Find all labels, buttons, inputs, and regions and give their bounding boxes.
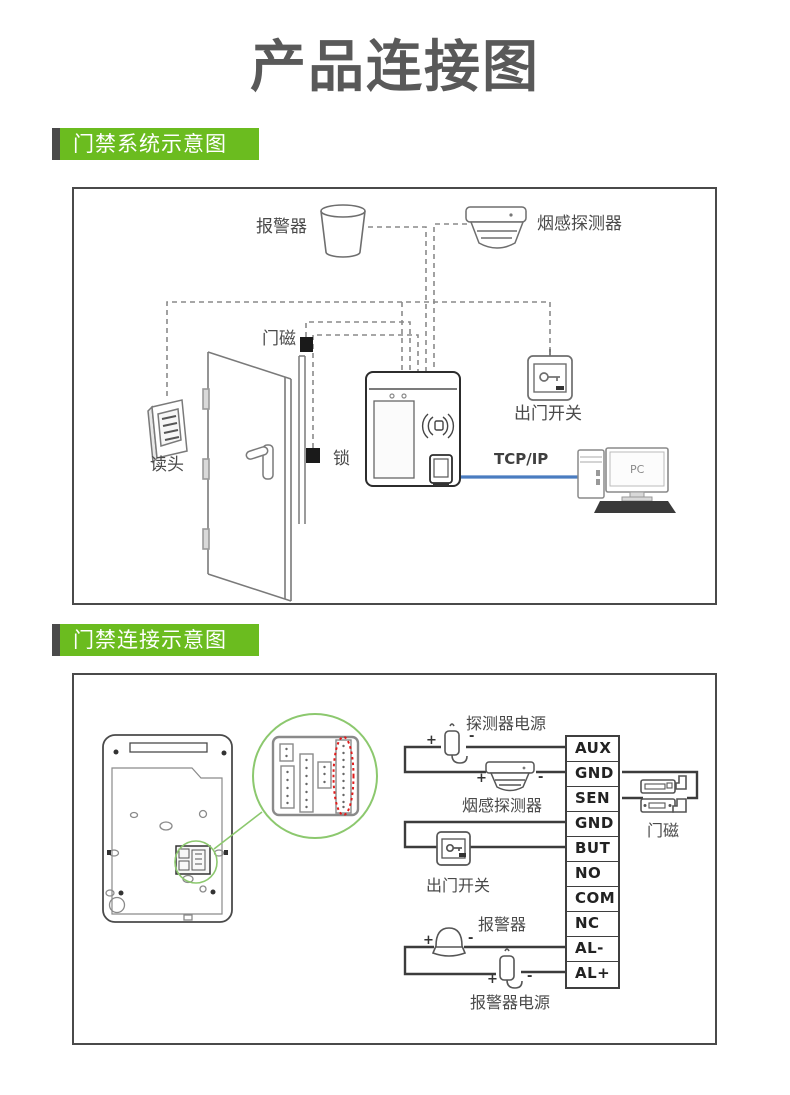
exit-switch-icon-2	[437, 832, 470, 865]
section-label-system: 门禁系统示意图	[52, 128, 259, 160]
smoke-detector-label-2: 烟感探测器	[462, 796, 542, 815]
connection-diagram: 探测器电源 + - 烟感探测器 + - 出门开关 报警器 + - 报警器电源 +…	[72, 673, 717, 1045]
minus-sign: -	[468, 931, 473, 946]
plus-sign: +	[487, 972, 498, 987]
lock-label: 锁	[333, 449, 350, 469]
section-title: 门禁系统示意图	[60, 128, 259, 160]
terminal-row: NC	[567, 912, 618, 937]
smoke-detector-label: 烟感探测器	[537, 214, 622, 234]
tcpip-label: TCP/IP	[494, 450, 548, 468]
door-magnet-icon	[300, 337, 313, 352]
terminal-block: AUX GND SEN GND BUT NO COM NC AL- AL+	[565, 735, 620, 989]
door-magnet-label-2: 门磁	[647, 821, 679, 840]
terminal-row: COM	[567, 887, 618, 912]
smoke-detector-icon-2	[486, 762, 534, 791]
detector-power-label: 探测器电源	[466, 714, 546, 733]
lock-icon	[306, 448, 320, 463]
alarm-icon	[321, 205, 365, 257]
door-magnet-icon-2	[641, 776, 686, 812]
label-accent-bar	[52, 624, 60, 656]
plus-sign: +	[476, 771, 487, 786]
terminal-row: GND	[567, 812, 618, 837]
exit-switch-label: 出门开关	[514, 404, 582, 424]
terminal-row: AL-	[567, 937, 618, 962]
alarm-power-icon	[500, 949, 522, 988]
smoke-detector-icon	[466, 207, 526, 248]
door	[203, 352, 291, 601]
access-terminal-icon	[366, 372, 460, 486]
dashed-wires	[167, 224, 550, 448]
terminal-row: NO	[567, 862, 618, 887]
door-frame	[299, 356, 305, 524]
exit-switch-label-2: 出门开关	[426, 876, 490, 895]
terminal-row: BUT	[567, 837, 618, 862]
door-handle-icon	[245, 445, 273, 479]
pc-label: PC	[630, 463, 645, 476]
section-title: 门禁连接示意图	[60, 624, 259, 656]
door-magnet-label: 门磁	[262, 329, 296, 349]
device-back-panel	[103, 735, 232, 922]
connector-area	[176, 846, 210, 874]
minus-sign: -	[527, 969, 532, 984]
reader-icon	[148, 400, 187, 462]
plus-sign: +	[426, 733, 437, 748]
reader-label: 读头	[150, 455, 184, 475]
alarm-label-2: 报警器	[478, 915, 526, 934]
exit-switch-icon	[528, 349, 572, 400]
page-title: 产品连接图	[0, 22, 790, 103]
terminal-row: GND	[567, 762, 618, 787]
alarm-icon-2	[433, 928, 465, 956]
fingerprint-module-icon	[430, 455, 452, 486]
minus-sign: -	[469, 729, 474, 744]
plus-sign: +	[423, 933, 434, 948]
alarm-power-label: 报警器电源	[470, 993, 550, 1012]
pc-icon: PC	[578, 448, 676, 513]
label-accent-bar	[52, 128, 60, 160]
terminal-row: AUX	[567, 737, 618, 762]
alarm-label: 报警器	[256, 217, 307, 237]
section-label-connection: 门禁连接示意图	[52, 624, 259, 656]
detector-power-icon	[445, 724, 467, 763]
terminal-row: SEN	[567, 787, 618, 812]
terminal-row: AL+	[567, 962, 618, 987]
system-diagram: 报警器 烟感探测器 门磁 锁	[72, 187, 717, 605]
minus-sign: -	[538, 770, 543, 785]
